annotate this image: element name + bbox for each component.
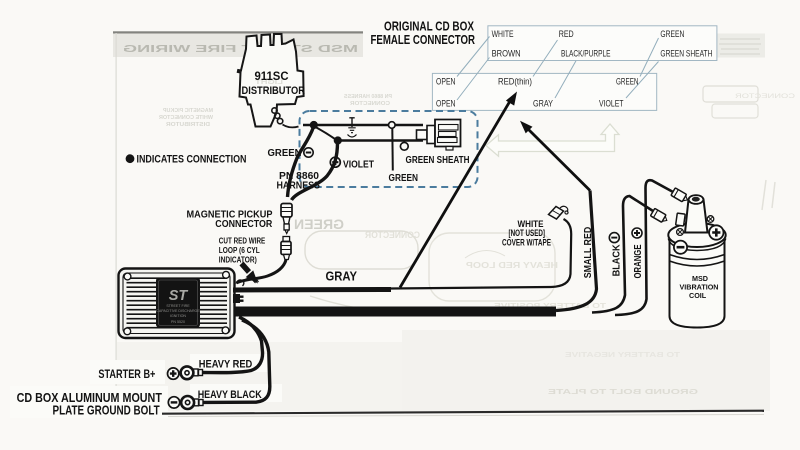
svg-text:MSD STREET FIRE WIRING: MSD STREET FIRE WIRING — [123, 43, 358, 55]
svg-text:GRAY: GRAY — [326, 269, 358, 283]
svg-text:CONNECTOR: CONNECTOR — [215, 219, 273, 230]
svg-text:CONNECTOR: CONNECTOR — [365, 230, 420, 240]
svg-text:STARTER B+: STARTER B+ — [98, 367, 155, 381]
svg-text:OPEN: OPEN — [436, 76, 456, 86]
svg-text:OPEN: OPEN — [436, 99, 456, 109]
svg-text:COIL: COIL — [689, 291, 707, 300]
svg-text:BROWN: BROWN — [492, 49, 521, 59]
svg-text:RED: RED — [559, 29, 574, 39]
svg-text:GREEN: GREEN — [616, 76, 639, 86]
svg-text:HEAVY RED LOOP: HEAVY RED LOOP — [465, 261, 558, 270]
svg-text:VIOLET: VIOLET — [599, 99, 624, 109]
svg-text:ST: ST — [169, 288, 189, 304]
svg-text:DISTRIBUTOR: DISTRIBUTOR — [166, 122, 210, 128]
svg-text:HEAVY BLACK: HEAVY BLACK — [198, 389, 263, 401]
svg-text:BLACK: BLACK — [611, 244, 623, 276]
svg-text:INDICATOR): INDICATOR) — [219, 255, 257, 264]
svg-text:PLATE GROUND BOLT: PLATE GROUND BOLT — [53, 404, 160, 418]
svg-text:GRAY: GRAY — [533, 99, 553, 109]
svg-text:PN 8860 HARNESS: PN 8860 HARNESS — [344, 94, 392, 100]
svg-text:CAPACITIVE DISCHARGE: CAPACITIVE DISCHARGE — [156, 309, 200, 313]
svg-text:GROUND BOLT TO PLATE: GROUND BOLT TO PLATE — [548, 387, 698, 396]
svg-text:VIOLET: VIOLET — [343, 158, 374, 170]
svg-text:COVER W/TAPE: COVER W/TAPE — [502, 238, 551, 248]
svg-text:PN 5520: PN 5520 — [171, 320, 185, 324]
svg-text:FEMALE CONNECTOR: FEMALE CONNECTOR — [371, 32, 476, 47]
svg-text:CONNECTOR: CONNECTOR — [350, 101, 390, 107]
svg-text:GREEN: GREEN — [389, 172, 419, 184]
svg-text:GREEN: GREEN — [294, 216, 344, 232]
svg-text:TO BATTERY NEGATIVE: TO BATTERY NEGATIVE — [565, 352, 680, 359]
svg-text:CONNECTOR: CONNECTOR — [735, 93, 795, 100]
svg-text:IGNITION: IGNITION — [170, 314, 186, 318]
svg-text:HEAVY RED: HEAVY RED — [199, 358, 253, 370]
svg-text:WHITE: WHITE — [492, 29, 514, 39]
svg-text:INDICATES CONNECTION: INDICATES CONNECTION — [137, 153, 247, 165]
svg-text:GREEN SHEATH: GREEN SHEATH — [660, 49, 712, 59]
svg-text:GREEN: GREEN — [660, 29, 684, 39]
svg-text:911SC: 911SC — [255, 71, 289, 83]
svg-text:DISTRIBUTOR: DISTRIBUTOR — [242, 85, 306, 97]
svg-text:CUT RED WIRE: CUT RED WIRE — [219, 237, 265, 246]
svg-text:SMALL RED: SMALL RED — [582, 226, 594, 278]
svg-text:ORANGE: ORANGE — [632, 245, 644, 279]
svg-text:MAGNETIC PICKUP: MAGNETIC PICKUP — [163, 108, 213, 114]
svg-text:WHITE CONNECTOR: WHITE CONNECTOR — [159, 115, 213, 121]
svg-text:GREEN SHEATH: GREEN SHEATH — [406, 154, 470, 166]
svg-text:BLACK/PURPLE: BLACK/PURPLE — [561, 49, 611, 59]
svg-text:LOOP (6 CYL: LOOP (6 CYL — [219, 246, 260, 255]
svg-text:RED(thin): RED(thin) — [498, 76, 532, 86]
svg-text:STREET FIRE: STREET FIRE — [166, 304, 190, 308]
svg-text:MSD: MSD — [692, 274, 708, 283]
